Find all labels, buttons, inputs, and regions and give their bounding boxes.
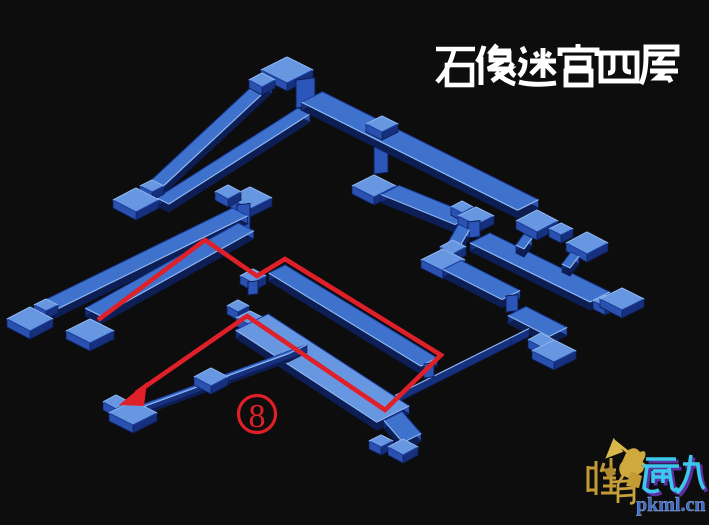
svg-text:8: 8 [249, 398, 266, 435]
svg-text:pkml.cn: pkml.cn [636, 494, 705, 516]
